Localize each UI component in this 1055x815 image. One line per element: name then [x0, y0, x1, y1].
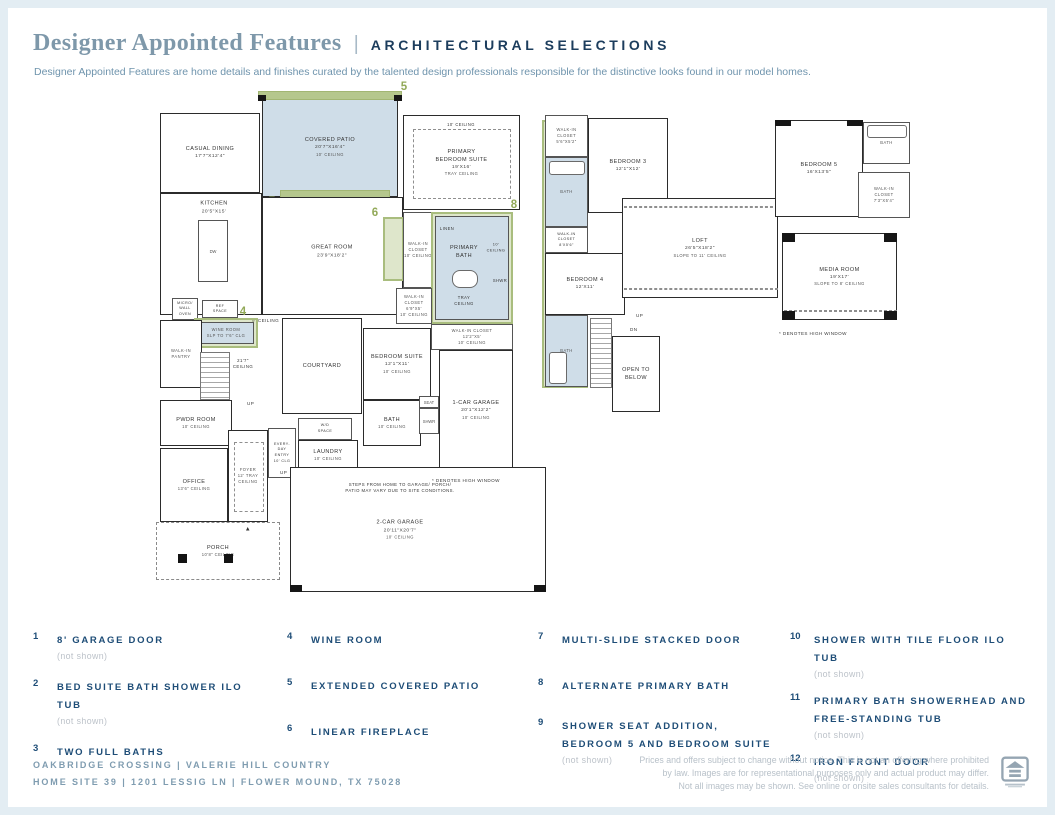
wall-segment: [782, 233, 795, 242]
room-walk-in-closet-bedroom5: WALK-INCLOSET7'3"X5'4": [858, 172, 910, 218]
legend-column-1: 18' GARAGE DOOR(not shown) 2BED SUITE BA…: [33, 630, 268, 776]
room-bedroom-5: BEDROOM 516'X13'5": [775, 120, 863, 217]
room-bedroom-4: BEDROOM 412'X11': [545, 253, 625, 315]
legend-item-2: 2BED SUITE BATH SHOWER ILO TUB(not shown…: [33, 677, 268, 726]
legend-item-4: 4WINE ROOM: [287, 630, 522, 648]
room-loft: LOFT26'5"X18'2"SLOPE TO 11' CEILING: [622, 198, 778, 298]
room-walk-in-closet-bedroom4: WALK-INCLOSET8'X5'6": [545, 227, 588, 253]
tub-fixture: [549, 161, 585, 175]
legend-item-11: 11PRIMARY BATH SHOWERHEAD AND FREE-STAND…: [790, 691, 1030, 740]
wall-segment: [884, 233, 897, 242]
tub-fixture: [549, 352, 567, 384]
dn-label: DN: [630, 327, 637, 332]
legend-item-6: 6LINEAR FIREPLACE: [287, 722, 522, 740]
legend-item-7: 7MULTI-SLIDE STACKED DOOR: [538, 630, 783, 648]
slope-line: [624, 206, 778, 208]
room-media-room: MEDIA ROOM19'X17'SLOPE TO 8' CEILING: [782, 233, 897, 320]
community-line-1: OAKBRIDGE CROSSING | VALERIE HILL COUNTR…: [33, 757, 402, 774]
legend-column-2: 4WINE ROOM 5EXTENDED COVERED PATIO 6LINE…: [287, 630, 522, 756]
equal-housing-opportunity-icon: [1001, 756, 1029, 793]
wall-segment: [847, 120, 863, 126]
room-walk-in-closet-bedroom3: WALK-INCLOSET5'6"X5'2": [545, 115, 588, 157]
slope-line: [624, 288, 778, 290]
wall-segment: [775, 120, 791, 126]
legend-item-5: 5EXTENDED COVERED PATIO: [287, 676, 522, 694]
tub-fixture: [867, 125, 907, 138]
stairs-second-floor: [590, 318, 612, 388]
community-line-2: HOME SITE 39 | 1201 LESSIG LN | FLOWER M…: [33, 774, 402, 791]
legal-disclaimer: Prices and offers subject to change with…: [639, 754, 989, 794]
up-label: UP: [636, 313, 643, 318]
wall-segment: [782, 311, 795, 320]
brochure-page: Designer Appointed Features | ARCHITECTU…: [0, 0, 1055, 815]
slope-line: [784, 310, 897, 312]
legend-item-8: 8ALTERNATE PRIMARY BATH: [538, 676, 783, 694]
wall-segment: [884, 311, 897, 320]
legend-item-1: 18' GARAGE DOOR(not shown): [33, 630, 268, 661]
high-window-note-2: * DENOTES HIGH WINDOW: [779, 331, 847, 336]
legend-item-10: 10SHOWER WITH TILE FLOOR ILO TUB(not sho…: [790, 630, 1030, 679]
community-info: OAKBRIDGE CROSSING | VALERIE HILL COUNTR…: [33, 757, 402, 791]
open-to-below: OPEN TOBELOW: [612, 336, 660, 412]
